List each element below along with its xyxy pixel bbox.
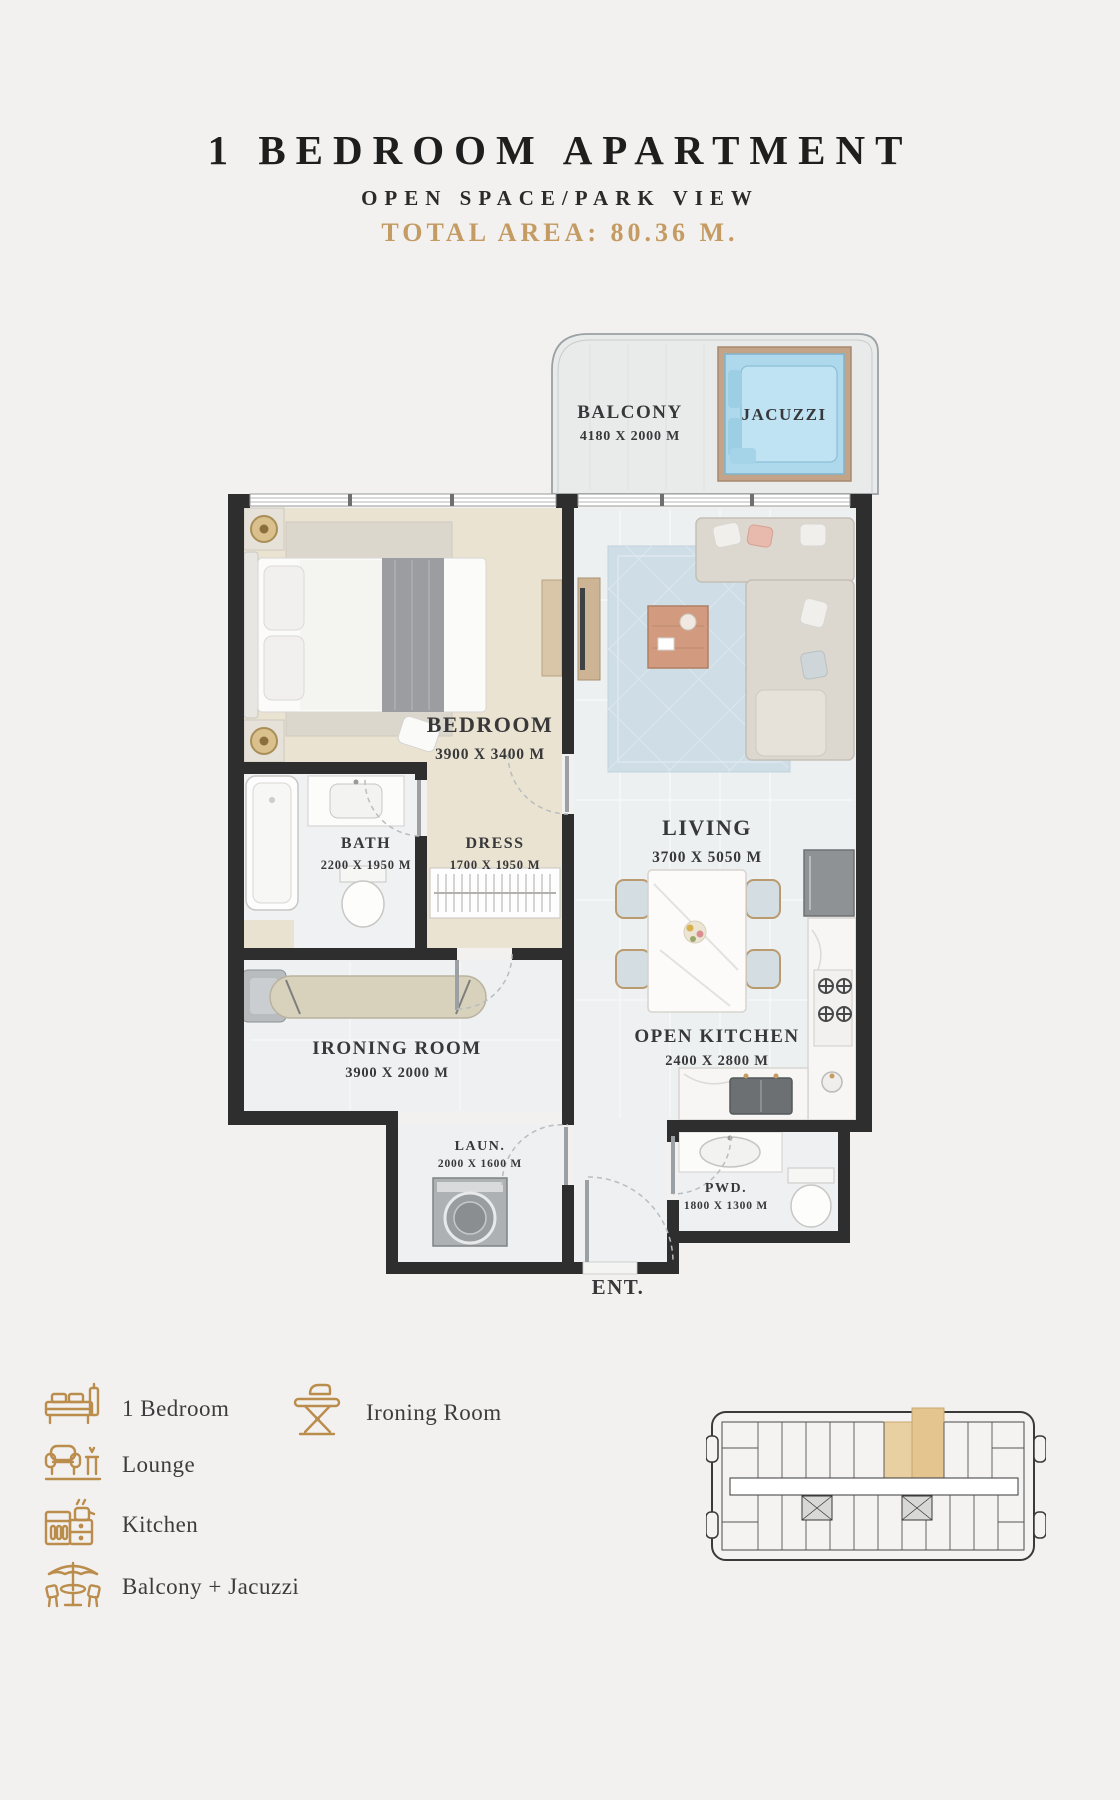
room-label-balcony: BALCONY bbox=[577, 402, 683, 423]
floor-plan: BALCONY 4180 X 2000 M JACUZZI bbox=[190, 270, 890, 1300]
room-dims-dress: 1700 X 1950 M bbox=[450, 858, 541, 872]
room-dims-pwd: 1800 X 1300 M bbox=[684, 1200, 768, 1212]
bed-icon bbox=[44, 1382, 102, 1435]
legend-item-kitchen: Kitchen bbox=[44, 1496, 198, 1553]
room-dims-living: 3700 X 5050 M bbox=[652, 849, 762, 866]
room-dims-open-kitchen: 2400 X 2800 M bbox=[665, 1053, 768, 1069]
balcony-area: BALCONY 4180 X 2000 M JACUZZI bbox=[552, 334, 878, 494]
page-title: 1 BEDROOM APARTMENT bbox=[0, 126, 1120, 174]
room-label-pwd: PWD. bbox=[705, 1181, 747, 1196]
kitchen-icon bbox=[44, 1496, 102, 1553]
balcony-jacuzzi-icon bbox=[44, 1556, 102, 1617]
key-plan-svg bbox=[706, 1400, 1046, 1578]
ironing-room-icon bbox=[292, 1382, 346, 1443]
room-dims-bedroom: 3900 X 3400 M bbox=[435, 746, 545, 763]
room-dims-bath: 2200 X 1950 M bbox=[321, 858, 412, 872]
entrance-label: ENT. bbox=[592, 1275, 645, 1299]
room-dims-laundry: 2000 X 1600 M bbox=[438, 1158, 522, 1170]
legend-label: Kitchen bbox=[122, 1512, 198, 1538]
room-label-dress: DRESS bbox=[465, 835, 524, 852]
floor-plan-poster: 1 BEDROOM APARTMENT OPEN SPACE/PARK VIEW… bbox=[0, 0, 1120, 1800]
room-dims-balcony: 4180 X 2000 M bbox=[580, 429, 680, 444]
room-label-bedroom: BEDROOM bbox=[427, 712, 554, 737]
room-dims-ironing-room: 3900 X 2000 M bbox=[345, 1065, 448, 1081]
legend-label: 1 Bedroom bbox=[122, 1396, 229, 1422]
floor-plan-svg: BALCONY 4180 X 2000 M JACUZZI bbox=[190, 270, 890, 1300]
legend-label: Lounge bbox=[122, 1452, 195, 1478]
total-area-text: TOTAL AREA: 80.36 M. bbox=[0, 218, 1120, 248]
room-label-bath: BATH bbox=[341, 835, 391, 852]
legend-label: Balcony + Jacuzzi bbox=[122, 1574, 299, 1600]
legend-item-ironing-room: Ironing Room bbox=[292, 1382, 502, 1443]
legend-item-bedroom: 1 Bedroom bbox=[44, 1382, 229, 1435]
room-label-ironing-room: IRONING ROOM bbox=[312, 1038, 481, 1059]
legend-label: Ironing Room bbox=[366, 1400, 502, 1426]
legend-item-lounge: Lounge bbox=[44, 1440, 195, 1489]
lounge-icon bbox=[44, 1440, 102, 1489]
dress-furniture bbox=[430, 868, 560, 918]
ironing-furniture bbox=[242, 970, 486, 1022]
room-label-jacuzzi: JACUZZI bbox=[741, 405, 826, 424]
key-plan bbox=[706, 1400, 1046, 1578]
room-label-laundry: LAUN. bbox=[455, 1139, 506, 1154]
page-subtitle: OPEN SPACE/PARK VIEW bbox=[0, 186, 1120, 211]
laundry-furniture bbox=[433, 1178, 507, 1246]
room-label-open-kitchen: OPEN KITCHEN bbox=[634, 1026, 799, 1047]
legend-item-balcony-jacuzzi: Balcony + Jacuzzi bbox=[44, 1556, 299, 1617]
room-label-living: LIVING bbox=[662, 815, 752, 840]
